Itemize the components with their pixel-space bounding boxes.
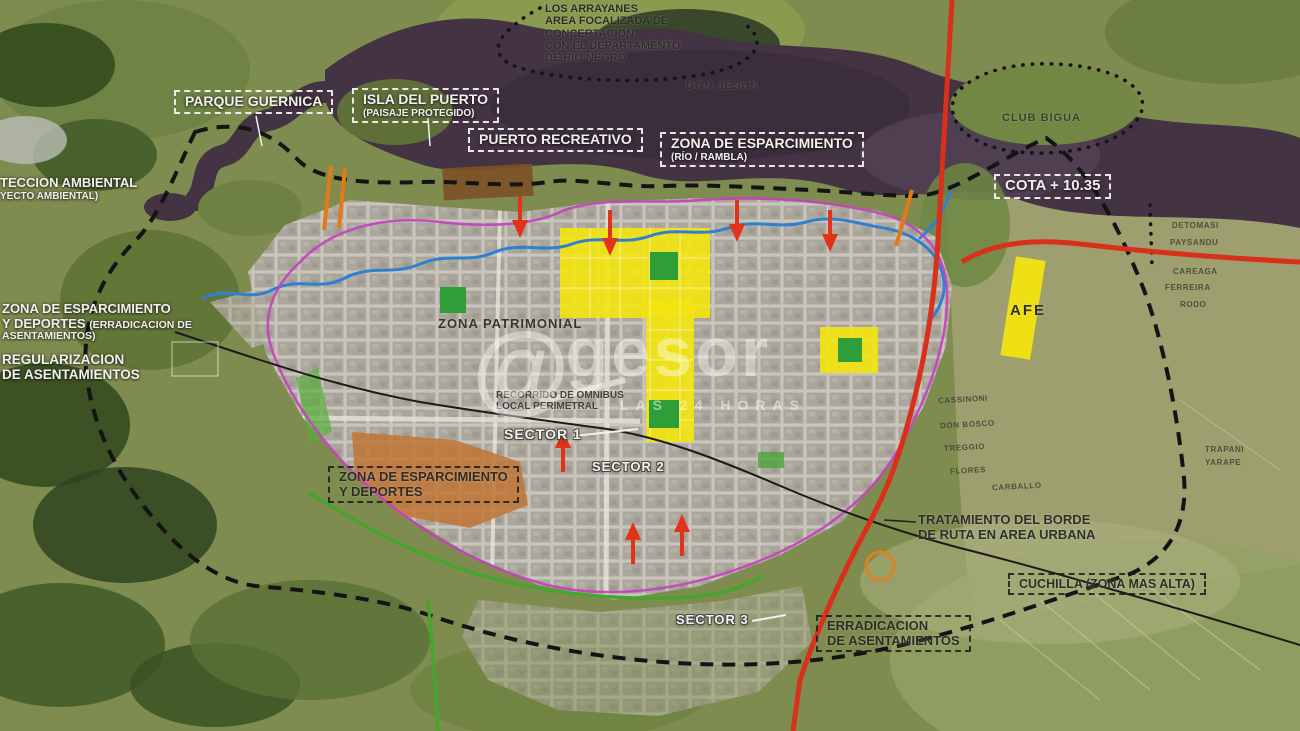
label-don-jesus: DON JESUS [686,80,759,92]
label-proteccion-ambiental: TECCION AMBIENTAL YECTO AMBIENTAL) [0,176,137,202]
map-canvas: LOS ARRAYANES AREA FOCALIZADA DE CONCERT… [0,0,1300,731]
label-line: Y DEPORTES [339,485,508,500]
label-isla-del-puerto: ISLA DEL PUERTO (PAISAJE PROTEGIDO) [352,88,499,123]
label-cota: COTA + 10.35 [994,174,1111,199]
label-line: LOCAL PERIMETRAL [496,401,624,412]
label-zona-esparcimiento-erradicacion: ZONA DE ESPARCIMIENTO Y DEPORTES (ERRADI… [2,302,192,343]
label-club-bigua: CLUB BIGUA [1002,112,1081,124]
label-puerto-recreativo: PUERTO RECREATIVO [468,128,643,152]
label-line: CON EL DEPARTAMENTO [545,40,680,52]
label-line: (RÍO / RAMBLA) [671,152,853,163]
street-label: PAYSANDU [1170,238,1218,247]
label-line: ZONA DE ESPARCIMIENTO [2,302,192,317]
street-label: RODO [1180,300,1206,309]
label-parque-guernica: PARQUE GUERNICA [174,90,333,114]
label-line: ERRADICACION [827,619,960,634]
label-regularizacion: REGULARIZACION DE ASENTAMIENTOS [2,352,140,382]
label-sector-1: SECTOR 1 [504,427,582,443]
label-line: RECORRIDO DE OMNIBUS [496,390,624,401]
label-line: ZONA DE ESPARCIMIENTO [671,136,853,152]
label-erradicacion: ERRADICACION DE ASENTAMIENTOS [816,615,971,652]
label-line: TRATAMIENTO DEL BORDE [918,513,1095,528]
street-label: TRAPANI [1205,445,1244,454]
label-line: LOS ARRAYANES [545,3,680,15]
label-los-arrayanes: LOS ARRAYANES AREA FOCALIZADA DE CONCERT… [545,3,680,65]
label-line: DE ASENTAMIENTOS [2,367,140,382]
label-line: DE RIO NEGRO [545,52,680,64]
label-line: DE RUTA EN AREA URBANA [918,528,1095,543]
street-label: FLORES [950,465,986,476]
label-zona-patrimonial: ZONA PATRIMONIAL [438,317,582,332]
label-recorrido-omnibus: RECORRIDO DE OMNIBUS LOCAL PERIMETRAL [496,390,624,412]
label-line: YECTO AMBIENTAL) [0,191,137,202]
label-line: ISLA DEL PUERTO [363,92,488,108]
label-line: AREA FOCALIZADA DE [545,15,680,27]
label-line: TECCION AMBIENTAL [0,176,137,191]
label-sector-3: SECTOR 3 [676,613,749,628]
label-afe: AFE [1010,303,1046,320]
label-tratamiento-borde: TRATAMIENTO DEL BORDE DE RUTA EN AREA UR… [918,513,1095,542]
label-line: ZONA DE ESPARCIMIENTO [339,470,508,485]
label-line: REGULARIZACION [2,352,140,367]
label-sector-2: SECTOR 2 [592,460,665,475]
label-cuchilla: CUCHILLA (ZONA MAS ALTA) [1008,573,1206,595]
label-zona-esparcimiento-deportes: ZONA DE ESPARCIMIENTO Y DEPORTES [328,466,519,503]
label-line: (PAISAJE PROTEGIDO) [363,108,488,119]
street-label: DETOMASI [1172,221,1219,230]
label-line: CONCERTACION [545,28,680,40]
street-label: YARAPE [1205,458,1241,467]
street-label: FERREIRA [1165,283,1211,292]
label-zona-esparcimiento-rio: ZONA DE ESPARCIMIENTO (RÍO / RAMBLA) [660,132,864,167]
street-label: CAREAGA [1173,267,1218,276]
label-line: DE ASENTAMIENTOS [827,634,960,649]
label-line: ASENTAMIENTOS) [2,331,192,343]
